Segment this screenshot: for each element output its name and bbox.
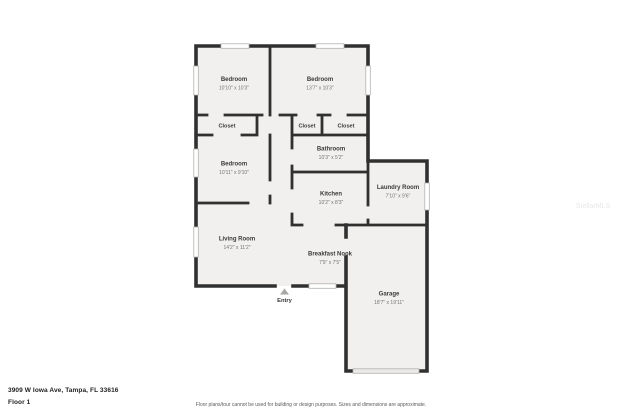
garage-floor [346, 225, 427, 371]
entry-arrow-icon [280, 289, 289, 295]
address: 3909 W Iowa Ave, Tampa, FL 33616 [8, 387, 119, 394]
room-label-closet-middle: Closet [298, 124, 315, 130]
room-dims: 18'7" x 19'11" [374, 300, 404, 306]
room-name: Living Room [219, 237, 255, 243]
room-name: Bedroom [221, 77, 247, 83]
floorplan-drawing: Entry Bedroom 10'10" x 10'3" Bedroom 13'… [0, 0, 622, 414]
window-breakfast-nook [309, 284, 336, 289]
room-dims: 10'11" x 9'10" [219, 170, 249, 176]
room-dims: 10'10" x 10'3" [219, 86, 249, 92]
room-name: Laundry Room [377, 185, 419, 191]
room-fills [196, 46, 427, 371]
room-dims: 13'7" x 10'3" [306, 86, 334, 92]
window-bedroom-right-top [316, 44, 344, 49]
window-bedroom-left-side [194, 66, 199, 95]
room-label-closet-left: Closet [218, 124, 235, 130]
room-dims: 7'10" x 9'6" [386, 194, 411, 200]
garage-door [353, 369, 419, 374]
room-dims: 7'9" x 7'5" [319, 260, 341, 266]
room-label-closet-right: Closet [337, 124, 354, 130]
disclaimer: Floor plans/tour cannot be used for buil… [0, 402, 622, 408]
room-dims: 14'2" x 11'2" [223, 245, 250, 251]
window-bedroom-middle-side [194, 149, 199, 177]
window-bedroom-right-side [366, 66, 371, 95]
watermark: StellarMLS [576, 203, 611, 210]
window-living-room-side [194, 227, 199, 257]
room-name: Bedroom [221, 162, 247, 168]
room-name: Garage [379, 292, 400, 298]
room-name: Breakfast Nook [308, 252, 353, 258]
room-name: Closet [337, 124, 354, 130]
room-name: Bedroom [307, 77, 333, 83]
room-name: Closet [298, 124, 315, 130]
window-bedroom-left-top [221, 44, 249, 49]
room-dims: 10'2" x 8'3" [319, 200, 344, 206]
entry-marker: Entry [277, 289, 293, 305]
room-name: Closet [218, 124, 235, 130]
room-dims: 10'3" x 5'2" [319, 155, 344, 161]
entry-label: Entry [277, 298, 293, 304]
room-name: Bathroom [317, 147, 345, 153]
floorplan-page: Entry Bedroom 10'10" x 10'3" Bedroom 13'… [0, 0, 622, 414]
window-laundry-side [425, 183, 430, 210]
room-name: Kitchen [320, 192, 342, 198]
